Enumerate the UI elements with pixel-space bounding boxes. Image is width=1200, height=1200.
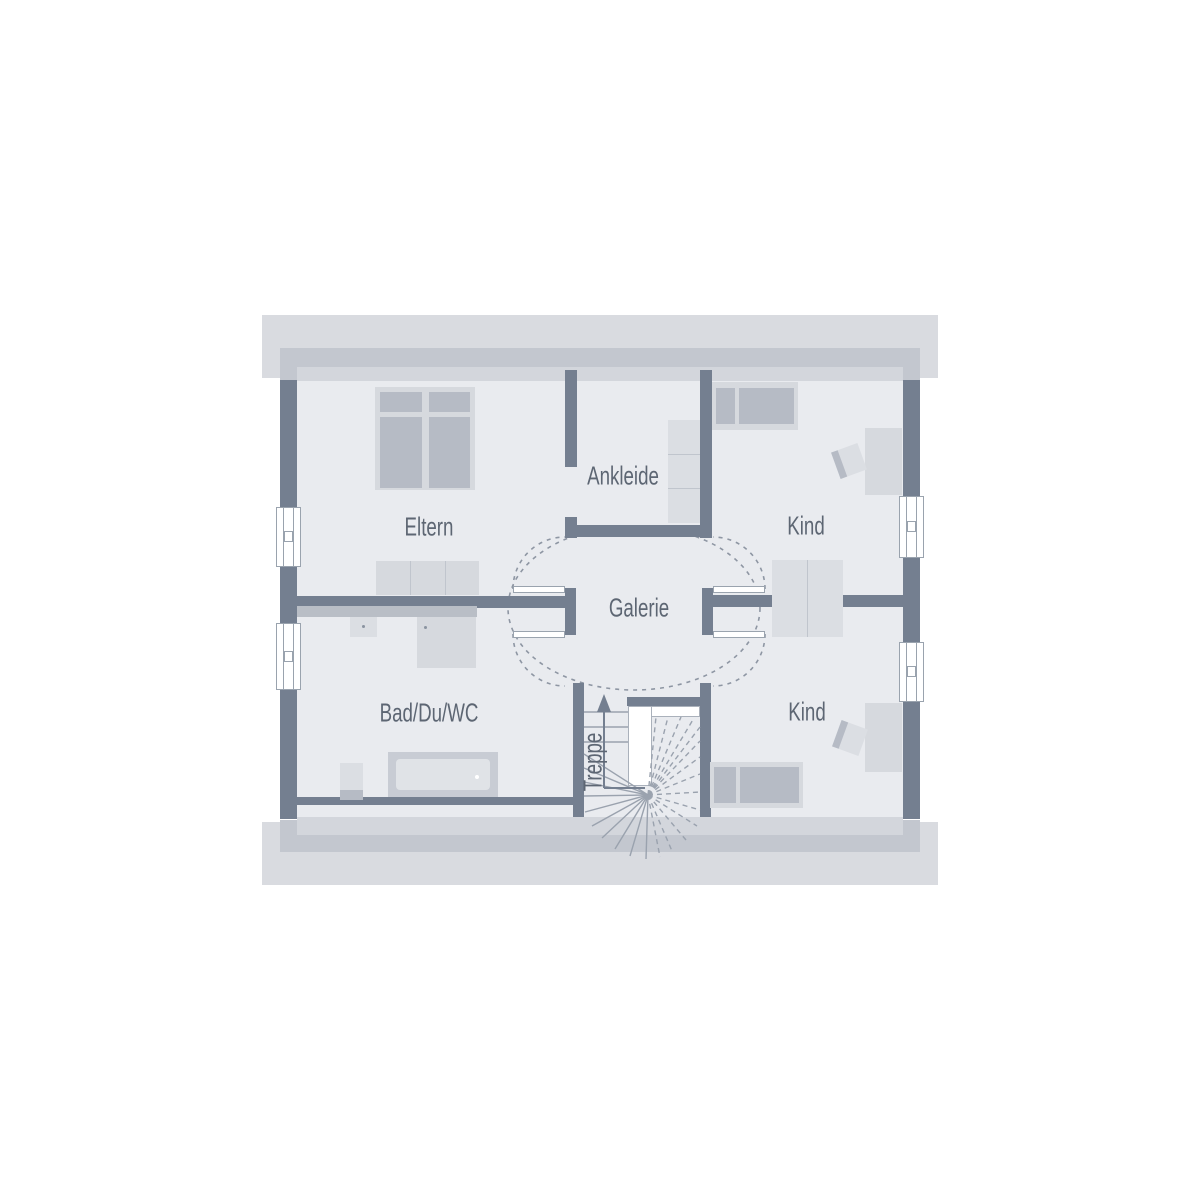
room-label-treppe: Treppe bbox=[578, 733, 609, 792]
room-label-galerie: Galerie bbox=[609, 593, 669, 624]
room-label-kind-bottom: Kind bbox=[788, 697, 825, 728]
floor-plan-canvas: Eltern Ankleide Kind Galerie Bad/Du/WC K… bbox=[0, 0, 1200, 1200]
room-label-kind-top: Kind bbox=[787, 511, 824, 542]
room-label-ankleide: Ankleide bbox=[587, 461, 659, 492]
stair-lines-layer bbox=[0, 0, 1200, 1200]
room-label-eltern: Eltern bbox=[405, 512, 454, 543]
room-label-bad: Bad/Du/WC bbox=[380, 698, 479, 729]
stair-treads-upper-dashed bbox=[648, 717, 700, 857]
